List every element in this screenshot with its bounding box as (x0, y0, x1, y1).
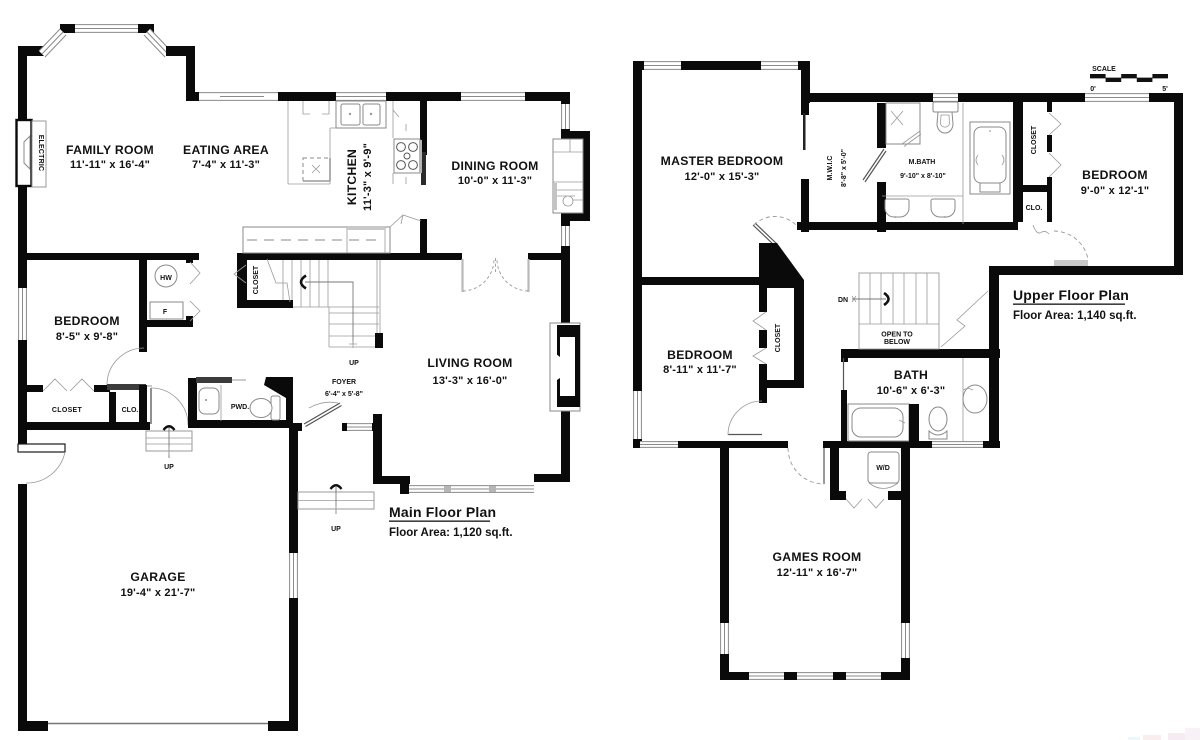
svg-text:LIVING ROOM: LIVING ROOM (427, 356, 512, 370)
svg-text:0': 0' (1090, 86, 1096, 93)
svg-text:Upper Floor Plan: Upper Floor Plan (1013, 287, 1129, 303)
svg-text:12'-0" x 15'-3": 12'-0" x 15'-3" (685, 171, 760, 183)
svg-text:13'-3" x 16'-0": 13'-3" x 16'-0" (433, 375, 508, 387)
svg-text:CLOSET: CLOSET (775, 323, 782, 352)
svg-text:OPEN TO: OPEN TO (881, 332, 913, 339)
svg-text:HW: HW (160, 275, 172, 282)
svg-text:GARAGE: GARAGE (130, 570, 185, 584)
svg-text:BELOW: BELOW (884, 339, 910, 346)
svg-text:DINING ROOM: DINING ROOM (451, 159, 538, 173)
svg-text:CLOSET: CLOSET (1031, 125, 1038, 154)
svg-text:FOYER: FOYER (332, 379, 356, 386)
svg-text:Floor Area: 1,120 sq.ft.: Floor Area: 1,120 sq.ft. (389, 527, 513, 539)
svg-text:M.W.I.C: M.W.I.C (827, 156, 834, 181)
svg-text:FAMILY ROOM: FAMILY ROOM (66, 143, 154, 157)
svg-text:11'-3" x 9'-9": 11'-3" x 9'-9" (362, 143, 374, 211)
svg-text:Floor Area: 1,140 sq.ft.: Floor Area: 1,140 sq.ft. (1013, 310, 1137, 322)
svg-text:DN: DN (838, 297, 848, 304)
svg-text:10'-6" x 6'-3": 10'-6" x 6'-3" (877, 385, 946, 397)
svg-text:11'-11" x 16'-4": 11'-11" x 16'-4" (70, 159, 150, 171)
svg-text:BEDROOM: BEDROOM (54, 314, 120, 328)
svg-text:7'-4" x 11'-3": 7'-4" x 11'-3" (192, 159, 260, 171)
svg-text:W/D: W/D (876, 465, 890, 472)
svg-text:19'-4" x 21'-7": 19'-4" x 21'-7" (121, 587, 196, 599)
svg-text:8'-11" x 11'-7": 8'-11" x 11'-7" (663, 364, 737, 376)
svg-text:8'-5" x 9'-8": 8'-5" x 9'-8" (56, 331, 118, 343)
svg-text:BEDROOM: BEDROOM (1082, 168, 1148, 182)
svg-text:CLOSET: CLOSET (253, 265, 260, 294)
svg-text:UP: UP (331, 526, 341, 533)
svg-text:CLO.: CLO. (122, 407, 139, 414)
svg-text:9'-0" x 12'-1": 9'-0" x 12'-1" (1081, 185, 1150, 197)
svg-text:Main Floor Plan: Main Floor Plan (389, 504, 496, 520)
svg-text:M.BATH: M.BATH (909, 159, 936, 166)
svg-text:5': 5' (1162, 86, 1168, 93)
svg-text:KITCHEN: KITCHEN (345, 149, 359, 205)
svg-text:ELECTRIC: ELECTRIC (37, 135, 44, 172)
svg-text:CLOSET: CLOSET (52, 407, 83, 414)
svg-text:8'-8" x 5'-0": 8'-8" x 5'-0" (841, 149, 848, 187)
svg-text:6'-4" x 5'-8": 6'-4" x 5'-8" (325, 391, 363, 398)
svg-text:BATH: BATH (894, 368, 928, 382)
svg-text:PWD.: PWD. (231, 404, 249, 411)
svg-text:CLO.: CLO. (1026, 205, 1043, 212)
svg-text:EATING AREA: EATING AREA (183, 143, 269, 157)
svg-text:GAMES ROOM: GAMES ROOM (773, 550, 862, 564)
svg-text:9'-10" x 8'-10": 9'-10" x 8'-10" (900, 173, 946, 180)
svg-text:12'-11" x 16'-7": 12'-11" x 16'-7" (777, 567, 858, 579)
svg-text:SCALE: SCALE (1092, 66, 1116, 73)
svg-text:MASTER BEDROOM: MASTER BEDROOM (661, 154, 784, 168)
svg-text:10'-0" x 11'-3": 10'-0" x 11'-3" (458, 175, 532, 187)
svg-text:BEDROOM: BEDROOM (667, 348, 733, 362)
svg-text:F: F (163, 309, 168, 316)
svg-text:UP: UP (164, 464, 174, 471)
svg-text:UP: UP (349, 360, 359, 367)
